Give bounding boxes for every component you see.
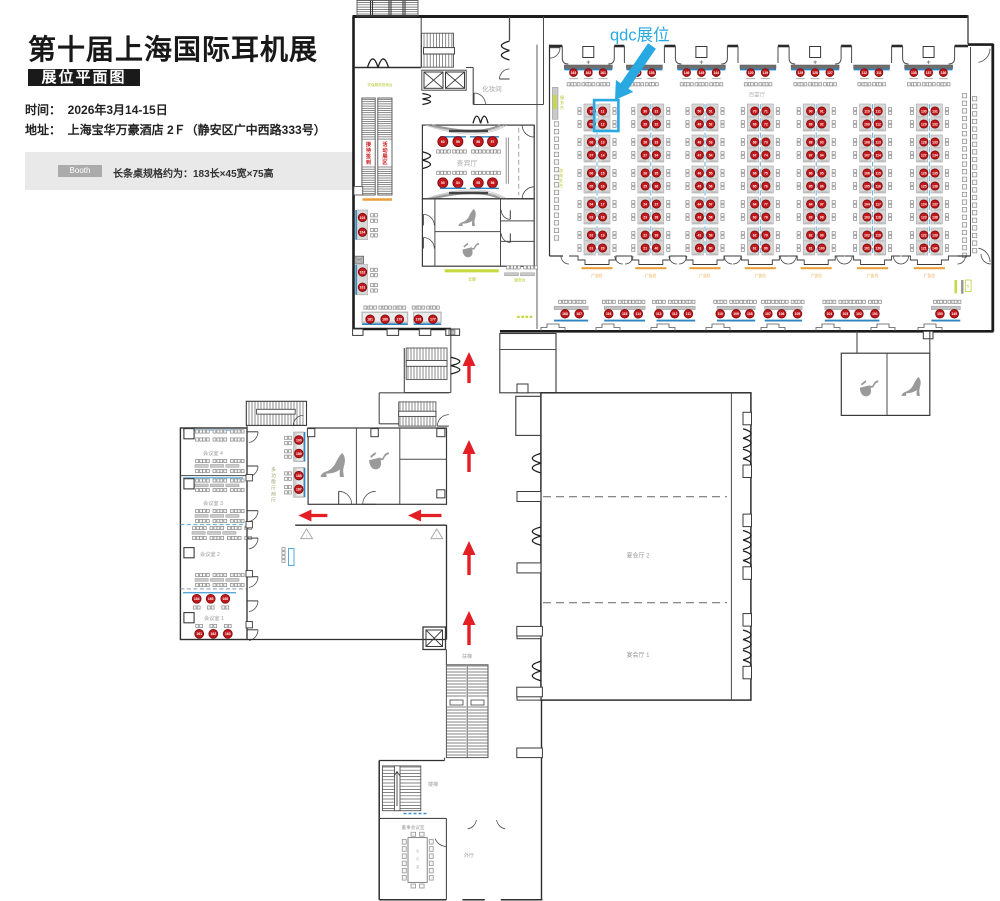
svg-text:42: 42	[698, 233, 702, 237]
svg-text:78: 78	[764, 215, 768, 219]
svg-text:104: 104	[826, 312, 832, 316]
svg-text:12: 12	[601, 122, 605, 126]
svg-text:17: 17	[601, 202, 605, 206]
svg-text:129: 129	[921, 122, 927, 126]
svg-text:128: 128	[812, 71, 818, 75]
svg-text:179: 179	[396, 318, 402, 322]
svg-text:到: 到	[366, 158, 371, 166]
svg-text:39: 39	[655, 233, 659, 237]
svg-text:26: 26	[643, 171, 647, 175]
svg-text:109: 109	[864, 122, 870, 126]
svg-text:前: 前	[271, 490, 276, 497]
svg-text:62: 62	[753, 233, 757, 237]
svg-text:73: 73	[764, 140, 768, 144]
svg-text:15: 15	[601, 171, 605, 175]
svg-text:95: 95	[820, 171, 824, 175]
svg-text:37: 37	[655, 202, 659, 206]
svg-text:厅: 厅	[271, 498, 276, 504]
svg-text:130: 130	[921, 109, 927, 113]
svg-text:188: 188	[296, 474, 302, 478]
svg-text:36: 36	[655, 184, 659, 188]
svg-text:多: 多	[271, 466, 276, 473]
svg-text:59: 59	[709, 233, 713, 237]
svg-text:60: 60	[441, 140, 445, 144]
svg-text:32: 32	[655, 122, 659, 126]
svg-text:扶梯: 扶梯	[462, 653, 472, 660]
svg-text:136: 136	[932, 184, 938, 188]
svg-text:118: 118	[875, 215, 881, 219]
svg-text:位: 位	[966, 283, 969, 288]
svg-text:43: 43	[698, 215, 702, 219]
svg-text:66: 66	[753, 171, 757, 175]
svg-text:董事会议室: 董事会议室	[402, 824, 425, 831]
svg-text:119: 119	[875, 233, 881, 237]
svg-text:能: 能	[271, 478, 276, 485]
svg-text:108: 108	[864, 140, 870, 144]
svg-text:102: 102	[360, 270, 366, 274]
svg-text:38: 38	[655, 215, 659, 219]
svg-text:签: 签	[365, 152, 372, 160]
svg-text:41: 41	[698, 246, 702, 250]
svg-text:133: 133	[932, 140, 938, 144]
svg-text:05: 05	[590, 184, 594, 188]
svg-text:166: 166	[222, 597, 228, 601]
svg-text:116: 116	[875, 184, 881, 188]
svg-text:厅: 厅	[271, 485, 276, 491]
svg-text:112: 112	[862, 71, 868, 75]
svg-text:80: 80	[764, 246, 768, 250]
svg-text:67: 67	[753, 153, 757, 157]
svg-text:103: 103	[360, 216, 366, 220]
svg-text:区: 区	[382, 158, 388, 166]
svg-text:广告位: 广告位	[867, 273, 879, 278]
svg-text:137: 137	[932, 202, 938, 206]
svg-text:54: 54	[709, 153, 713, 157]
svg-text:138: 138	[932, 215, 938, 219]
svg-text:113: 113	[875, 140, 881, 144]
svg-text:110: 110	[717, 312, 723, 316]
svg-text:165: 165	[208, 597, 214, 601]
svg-text:140: 140	[932, 246, 938, 250]
svg-text:103: 103	[864, 215, 870, 219]
svg-text:115: 115	[622, 312, 628, 316]
svg-text:112: 112	[672, 312, 678, 316]
svg-text:92: 92	[820, 122, 824, 126]
svg-text:98: 98	[820, 215, 824, 219]
svg-text:外厅: 外厅	[464, 852, 474, 859]
svg-text:85: 85	[809, 184, 813, 188]
svg-text:59: 59	[456, 140, 460, 144]
svg-text:28: 28	[643, 140, 647, 144]
svg-text:126: 126	[921, 171, 927, 175]
svg-text:164: 164	[194, 597, 200, 601]
svg-text:14: 14	[601, 153, 605, 157]
svg-text:13: 13	[601, 140, 605, 144]
svg-text:56: 56	[491, 181, 495, 185]
svg-text:48: 48	[698, 140, 702, 144]
svg-text:53: 53	[709, 140, 713, 144]
svg-text:79: 79	[764, 233, 768, 237]
svg-text:89: 89	[809, 122, 813, 126]
svg-text:111: 111	[876, 109, 881, 113]
svg-text:74: 74	[764, 153, 768, 157]
svg-text:119: 119	[763, 71, 769, 75]
svg-text:44: 44	[698, 202, 702, 206]
svg-text:33: 33	[655, 140, 659, 144]
svg-text:94: 94	[820, 153, 824, 157]
svg-text:待: 待	[366, 146, 372, 154]
svg-text:宴会厅 2: 宴会厅 2	[626, 552, 650, 560]
svg-text:桌: 桌	[416, 864, 420, 869]
svg-text:会议室 2: 会议室 2	[200, 550, 220, 558]
svg-text:181: 181	[367, 318, 373, 322]
svg-text:107: 107	[765, 312, 771, 316]
svg-text:72: 72	[764, 122, 768, 126]
svg-text:47: 47	[698, 153, 702, 157]
svg-text:活: 活	[382, 140, 388, 148]
svg-text:120: 120	[748, 71, 754, 75]
svg-text:69: 69	[753, 122, 757, 126]
svg-text:!: !	[306, 533, 307, 538]
svg-text:03: 03	[590, 215, 594, 219]
svg-text:110: 110	[864, 109, 870, 113]
svg-text:08: 08	[590, 140, 594, 144]
svg-text:162: 162	[585, 71, 591, 75]
svg-text:会议室 3: 会议室 3	[203, 499, 223, 507]
svg-text:71: 71	[764, 109, 768, 113]
svg-text:161: 161	[600, 71, 606, 75]
svg-text:121: 121	[921, 246, 927, 250]
svg-text:50: 50	[698, 109, 702, 113]
svg-text:会议室 4: 会议室 4	[203, 449, 223, 457]
svg-text:25: 25	[643, 184, 647, 188]
svg-text:化妆间: 化妆间	[482, 84, 502, 93]
svg-text:16: 16	[601, 184, 605, 188]
svg-text:55: 55	[476, 181, 480, 185]
svg-text:23: 23	[643, 215, 647, 219]
svg-text:02: 02	[590, 233, 594, 237]
svg-text:131: 131	[932, 109, 938, 113]
svg-text:102: 102	[856, 312, 862, 316]
svg-text:75: 75	[764, 171, 768, 175]
svg-text:30: 30	[643, 109, 647, 113]
svg-text:163: 163	[225, 632, 231, 636]
svg-text:广告位: 广告位	[699, 273, 711, 278]
svg-text:53: 53	[441, 181, 445, 185]
svg-text:88: 88	[809, 140, 813, 144]
svg-text:107: 107	[864, 153, 870, 157]
svg-text:101: 101	[864, 246, 870, 250]
svg-text:广告位: 广告位	[755, 273, 767, 278]
svg-text:128: 128	[921, 140, 927, 144]
svg-text:82: 82	[809, 233, 813, 237]
svg-text:68: 68	[753, 140, 757, 144]
svg-text:111: 111	[686, 312, 691, 316]
svg-text:149: 149	[951, 312, 957, 316]
svg-text:19: 19	[601, 233, 605, 237]
svg-text:04: 04	[590, 202, 594, 206]
svg-text:宴会厅 1: 宴会厅 1	[626, 651, 650, 659]
svg-text:127: 127	[827, 71, 833, 75]
svg-text:64: 64	[753, 202, 757, 206]
svg-text:18: 18	[601, 215, 605, 219]
svg-text:24: 24	[643, 202, 647, 206]
svg-text:163: 163	[571, 71, 577, 75]
svg-text:109: 109	[733, 312, 739, 316]
svg-text:广告位: 广告位	[924, 273, 936, 278]
svg-text:117: 117	[875, 202, 881, 206]
svg-text:20: 20	[601, 246, 605, 250]
svg-text:168: 168	[562, 312, 568, 316]
svg-text:服务台: 服务台	[514, 278, 526, 283]
svg-text:会议室 1: 会议室 1	[204, 614, 224, 622]
svg-text:190: 190	[296, 438, 302, 442]
svg-text:99: 99	[820, 233, 824, 237]
svg-text:35: 35	[655, 171, 659, 175]
svg-text:22: 22	[643, 233, 647, 237]
svg-text:114: 114	[636, 312, 642, 316]
svg-text:136: 136	[941, 71, 947, 75]
svg-text:138: 138	[911, 71, 917, 75]
svg-text:29: 29	[643, 122, 647, 126]
svg-text:台: 台	[560, 104, 564, 110]
svg-text:124: 124	[921, 202, 927, 206]
svg-text:楼梯: 楼梯	[428, 781, 438, 788]
svg-text:34: 34	[655, 153, 659, 157]
svg-text:qdc展位: qdc展位	[610, 26, 670, 45]
svg-text:54: 54	[456, 181, 460, 185]
svg-text:106: 106	[779, 312, 785, 316]
svg-text:137: 137	[926, 71, 932, 75]
svg-text:!: !	[436, 533, 437, 538]
svg-text:21: 21	[643, 246, 647, 250]
svg-text:06: 06	[590, 171, 594, 175]
svg-text:187: 187	[296, 488, 302, 492]
svg-text:113: 113	[656, 312, 662, 316]
svg-text:31: 31	[655, 109, 659, 113]
svg-text:97: 97	[820, 202, 824, 206]
svg-text:01: 01	[590, 246, 594, 250]
svg-text:111: 111	[876, 71, 881, 75]
svg-text:101: 101	[360, 286, 366, 290]
svg-text:104: 104	[360, 231, 366, 235]
svg-text:58: 58	[476, 140, 480, 144]
svg-text:112: 112	[875, 122, 881, 126]
svg-text:116: 116	[606, 312, 612, 316]
svg-text:129: 129	[797, 71, 803, 75]
svg-text:105: 105	[795, 312, 801, 316]
svg-text:63: 63	[753, 215, 757, 219]
svg-text:86: 86	[809, 171, 813, 175]
svg-text:11: 11	[601, 109, 605, 113]
svg-text:58: 58	[709, 215, 713, 219]
svg-text:接: 接	[366, 140, 372, 148]
svg-text:162: 162	[210, 632, 216, 636]
svg-text:102: 102	[864, 233, 870, 237]
svg-text:81: 81	[809, 246, 813, 250]
svg-text:76: 76	[764, 184, 768, 188]
svg-text:106: 106	[864, 171, 870, 175]
svg-text:70: 70	[753, 109, 757, 113]
svg-text:96: 96	[820, 184, 824, 188]
svg-text:56: 56	[709, 184, 713, 188]
svg-text:77: 77	[764, 202, 768, 206]
svg-text:安保服务咨询台: 安保服务咨询台	[367, 82, 393, 87]
svg-text:60: 60	[709, 246, 713, 250]
svg-text:146: 146	[684, 71, 690, 75]
svg-text:180: 180	[382, 318, 388, 322]
svg-text:120: 120	[875, 246, 881, 250]
svg-text:52: 52	[709, 122, 713, 126]
svg-text:议: 议	[416, 856, 420, 861]
svg-text:84: 84	[809, 202, 813, 206]
svg-text:长廊: 长廊	[468, 276, 476, 282]
svg-text:134: 134	[932, 153, 938, 157]
svg-text:55: 55	[709, 171, 713, 175]
svg-text:广告位: 广告位	[645, 273, 657, 278]
svg-text:广告位: 广告位	[811, 273, 823, 278]
svg-text:57: 57	[709, 202, 713, 206]
svg-text:135: 135	[932, 171, 938, 175]
svg-text:104: 104	[864, 202, 870, 206]
svg-text:61: 61	[753, 246, 757, 250]
svg-text:百宴厅: 百宴厅	[749, 90, 766, 98]
svg-text:167: 167	[576, 312, 582, 316]
svg-text:91: 91	[820, 109, 824, 113]
svg-text:139: 139	[932, 233, 938, 237]
svg-text:101: 101	[872, 312, 878, 316]
svg-text:145: 145	[699, 71, 705, 75]
svg-text:144: 144	[713, 71, 719, 75]
svg-text:40: 40	[655, 246, 659, 250]
svg-text:贵宾厅: 贵宾厅	[457, 159, 478, 168]
svg-text:132: 132	[932, 122, 938, 126]
svg-text:114: 114	[875, 153, 881, 157]
svg-text:93: 93	[820, 140, 824, 144]
svg-text:83: 83	[809, 215, 813, 219]
svg-text:27: 27	[643, 153, 647, 157]
svg-text:150: 150	[937, 312, 943, 316]
svg-text:103: 103	[842, 312, 848, 316]
svg-text:153: 153	[649, 71, 655, 75]
svg-text:07: 07	[590, 153, 594, 157]
svg-text:161: 161	[196, 632, 202, 636]
svg-text:127: 127	[921, 153, 927, 157]
svg-text:46: 46	[698, 171, 702, 175]
svg-text:45: 45	[698, 184, 702, 188]
svg-text:105: 105	[864, 184, 870, 188]
svg-text:189: 189	[296, 452, 302, 456]
svg-text:57: 57	[491, 140, 495, 144]
svg-text:台: 台	[559, 182, 563, 188]
svg-text:广告位: 广告位	[591, 273, 603, 278]
svg-text:87: 87	[809, 153, 813, 157]
svg-text:108: 108	[747, 312, 753, 316]
svg-text:90: 90	[809, 109, 813, 113]
svg-text:122: 122	[921, 233, 927, 237]
svg-text:100: 100	[819, 246, 825, 250]
svg-text:展: 展	[382, 152, 388, 160]
svg-text:51: 51	[709, 109, 713, 113]
svg-text:177: 177	[430, 318, 436, 322]
svg-text:动: 动	[382, 146, 387, 154]
svg-text:49: 49	[698, 122, 702, 126]
svg-text:功: 功	[271, 472, 276, 479]
svg-text:会: 会	[416, 848, 420, 853]
svg-text:65: 65	[753, 184, 757, 188]
svg-text:123: 123	[921, 215, 927, 219]
svg-text:178: 178	[416, 318, 422, 322]
svg-text:125: 125	[921, 184, 927, 188]
svg-text:115: 115	[875, 171, 881, 175]
